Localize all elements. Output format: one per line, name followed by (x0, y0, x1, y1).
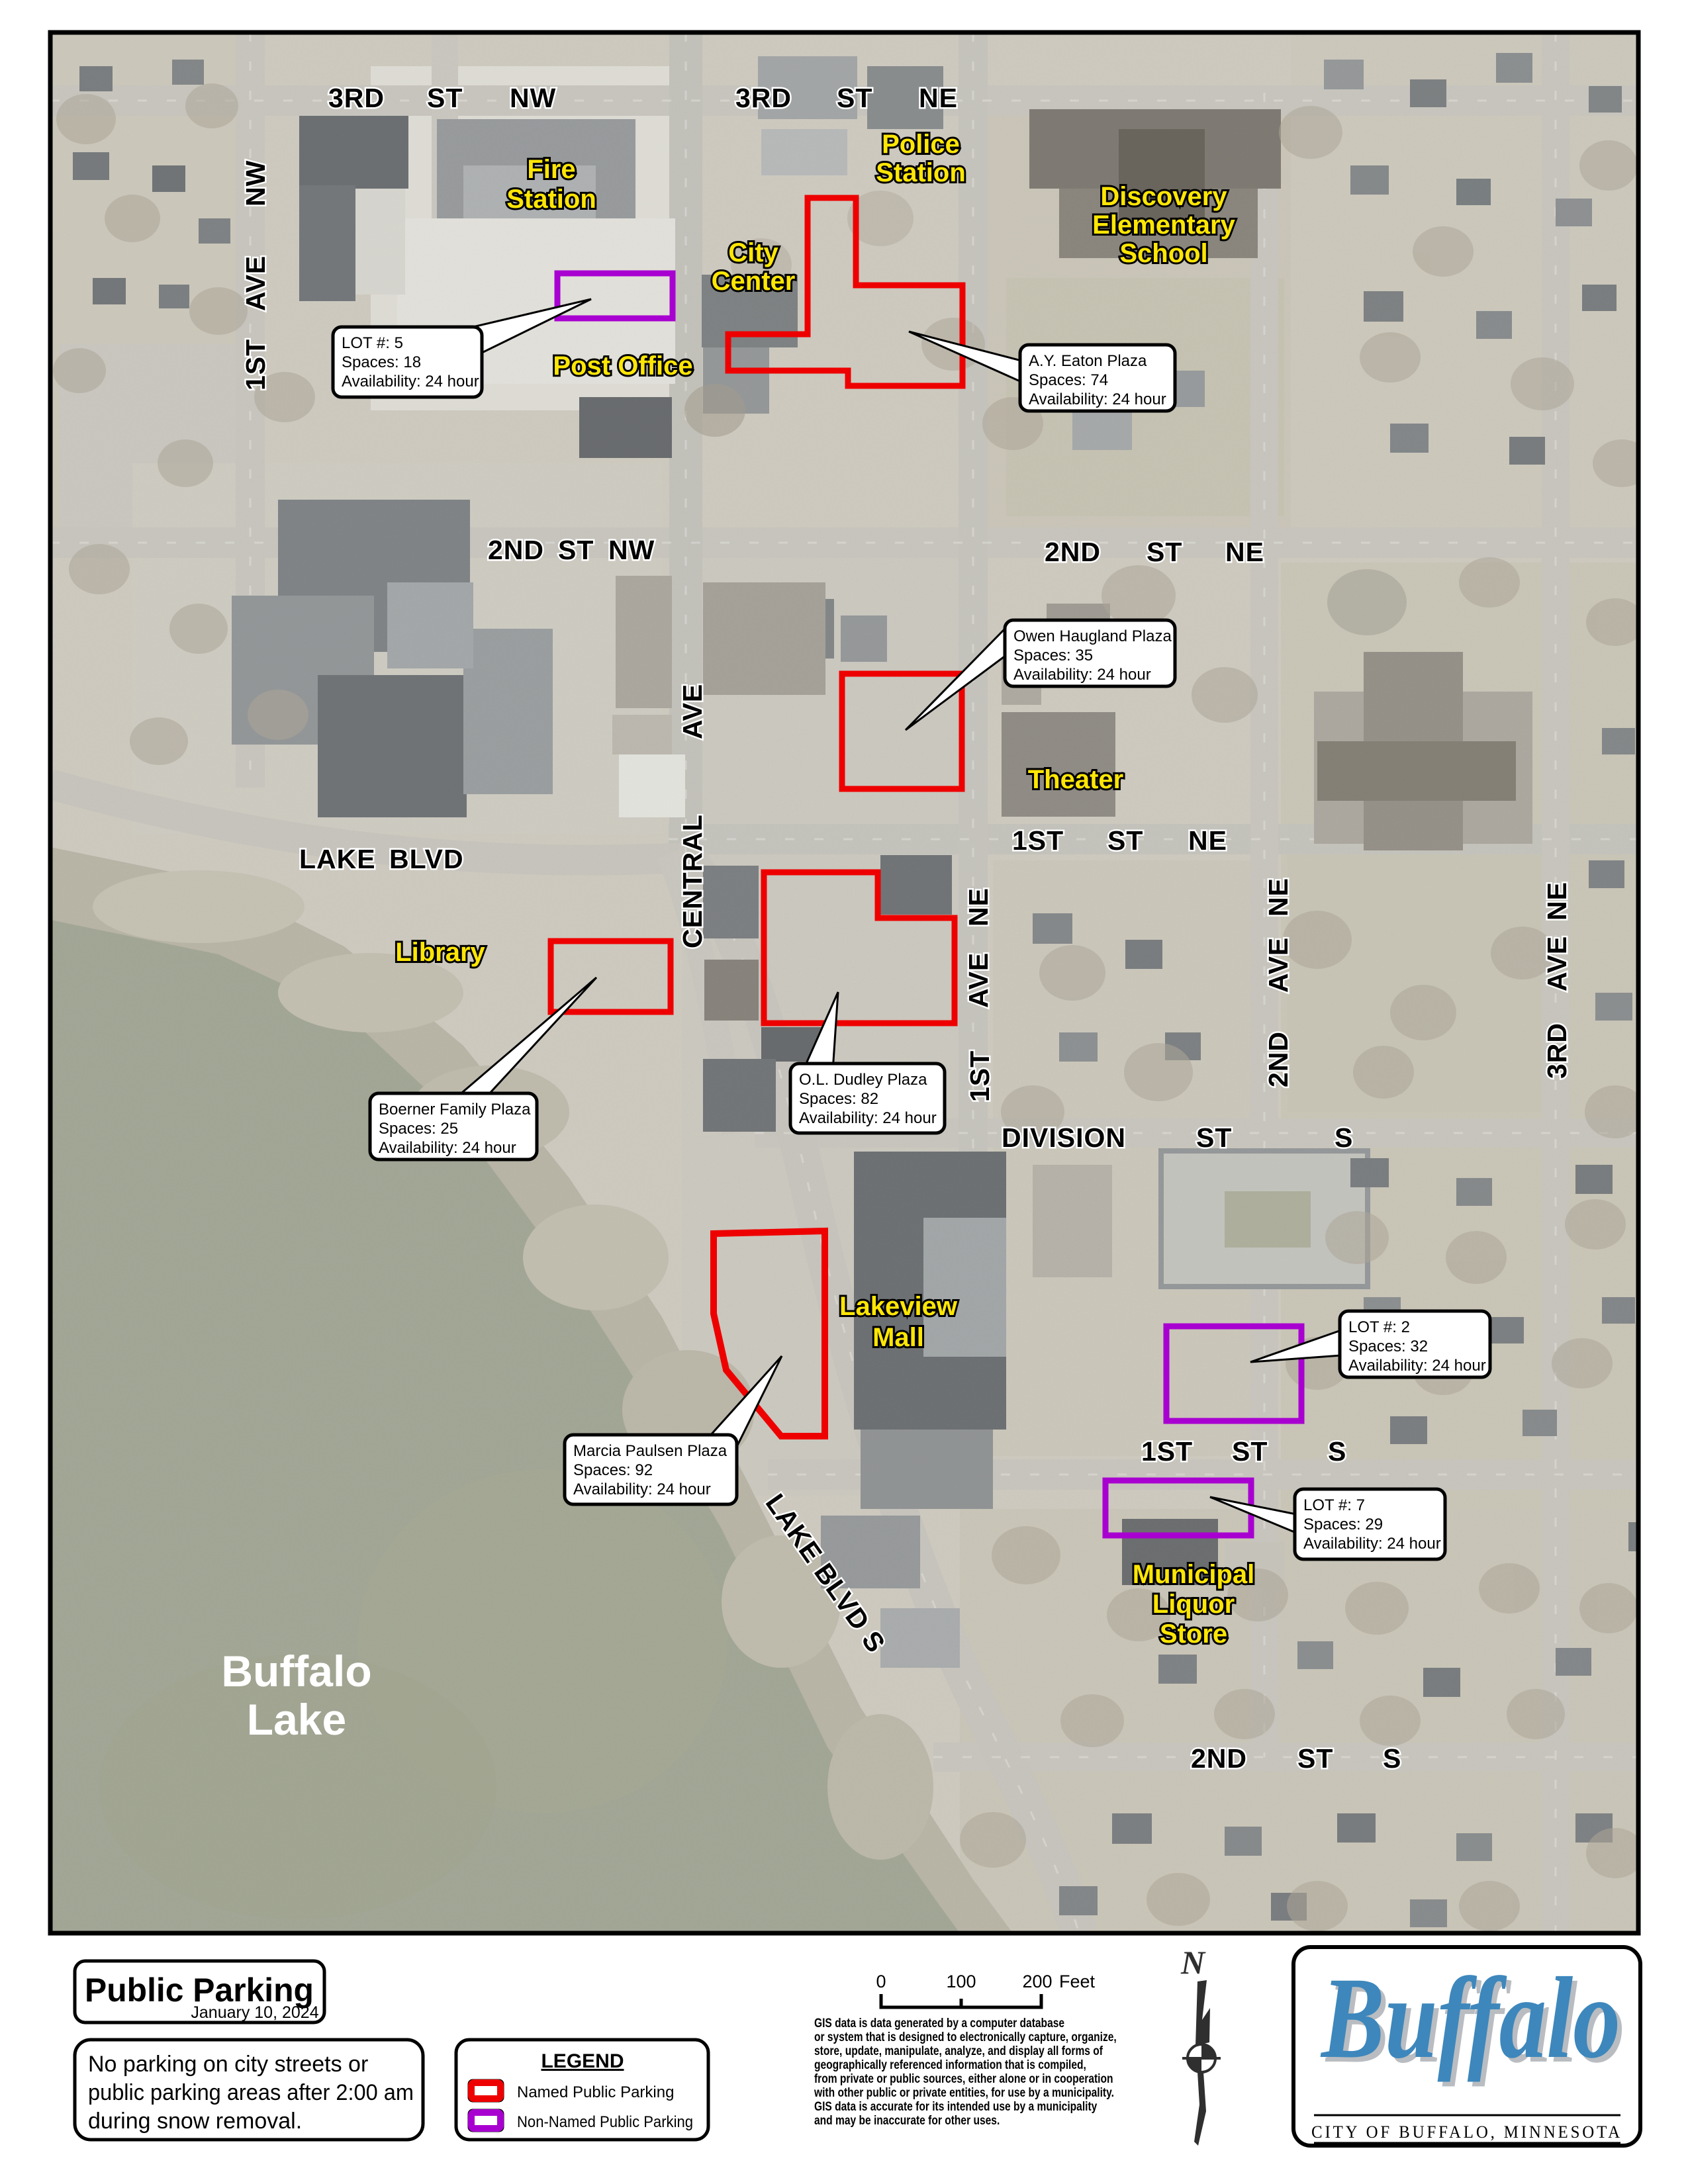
svg-text:LOT #: 5: LOT #: 5 (342, 334, 403, 352)
svg-text:1ST: 1ST (240, 339, 271, 390)
svg-text:from private or public sources: from private or public sources, either a… (814, 2071, 1113, 2086)
svg-text:CENTRAL: CENTRAL (677, 814, 708, 948)
svg-text:S: S (1328, 1436, 1346, 1467)
svg-text:2ND: 2ND (1045, 537, 1101, 567)
svg-text:100: 100 (946, 1972, 976, 1991)
svg-text:3RD: 3RD (735, 83, 792, 113)
svg-text:ST: ST (1196, 1122, 1232, 1153)
svg-text:Theater: Theater (1028, 765, 1124, 794)
svg-text:Marcia Paulsen Plaza: Marcia Paulsen Plaza (573, 1442, 727, 1460)
svg-text:ST: ST (1107, 825, 1143, 856)
svg-text:ST: ST (837, 83, 872, 113)
svg-text:City: City (728, 238, 778, 267)
svg-text:200: 200 (1022, 1972, 1052, 1991)
svg-text:Owen Haugland Plaza: Owen Haugland Plaza (1013, 627, 1172, 645)
svg-text:GIS data is data generated by: GIS data is data generated by a computer… (814, 2016, 1064, 2030)
svg-text:ST: ST (1232, 1436, 1268, 1467)
svg-text:CITY OF BUFFALO, MINNESOTA: CITY OF BUFFALO, MINNESOTA (1311, 2122, 1622, 2142)
svg-text:Center: Center (712, 267, 796, 296)
svg-text:geographically referenced info: geographically referenced information th… (814, 2058, 1086, 2072)
svg-text:Discovery: Discovery (1100, 182, 1227, 211)
svg-text:3RD: 3RD (1542, 1023, 1572, 1079)
svg-text:LAKE: LAKE (299, 844, 376, 874)
svg-text:Feet: Feet (1059, 1972, 1096, 1991)
svg-text:LOT #: 7: LOT #: 7 (1303, 1496, 1365, 1514)
svg-text:Availability: 24 hour: Availability: 24 hour (1029, 390, 1166, 408)
svg-text:BLVD: BLVD (389, 844, 464, 874)
svg-text:Availability: 24 hour: Availability: 24 hour (379, 1139, 516, 1157)
svg-text:S: S (1335, 1122, 1353, 1153)
svg-text:Station: Station (876, 158, 966, 187)
svg-text:ST: ST (1147, 537, 1182, 567)
svg-text:or system that is designed to: or system that is designed to electronic… (814, 2030, 1117, 2044)
svg-text:store, update, manipulate, ana: store, update, manipulate, analyze, and … (814, 2044, 1103, 2058)
svg-text:during snow removal.: during snow removal. (88, 2109, 302, 2134)
svg-text:with other public or private e: with other public or private entities, f… (814, 2085, 1114, 2100)
svg-text:O.L. Dudley Plaza: O.L. Dudley Plaza (799, 1071, 927, 1089)
svg-text:1ST: 1ST (964, 1050, 995, 1102)
svg-text:AVE: AVE (1263, 937, 1293, 993)
svg-text:0: 0 (876, 1972, 886, 1991)
svg-text:NE: NE (963, 887, 994, 927)
svg-text:public parking areas after 2:0: public parking areas after 2:00 am (88, 2080, 414, 2105)
svg-text:No parking on city streets or: No parking on city streets or (88, 2052, 368, 2077)
svg-text:January 10, 2024: January 10, 2024 (191, 2003, 318, 2022)
svg-text:2ND: 2ND (1191, 1743, 1247, 1774)
svg-text:Spaces: 25: Spaces: 25 (379, 1120, 458, 1138)
svg-text:Availability: 24 hour: Availability: 24 hour (1303, 1535, 1441, 1553)
svg-text:1ST: 1ST (1141, 1436, 1193, 1467)
svg-text:Police: Police (882, 130, 960, 159)
svg-text:S: S (1383, 1743, 1401, 1774)
svg-text:Buffalo: Buffalo (1320, 1954, 1620, 2083)
svg-text:and may be inaccurate for othe: and may be inaccurate for other uses. (814, 2113, 1000, 2128)
svg-text:ST: ST (427, 83, 463, 113)
svg-text:NE: NE (1225, 537, 1264, 567)
svg-text:N: N (1180, 1944, 1206, 1981)
svg-text:2ND: 2ND (488, 535, 544, 565)
svg-text:Municipal: Municipal (1133, 1560, 1254, 1589)
svg-text:Library: Library (395, 938, 485, 967)
svg-text:NW: NW (240, 160, 271, 206)
svg-text:School: School (1119, 239, 1207, 268)
svg-text:NW: NW (608, 535, 655, 565)
svg-text:Availability: 24 hour: Availability: 24 hour (342, 373, 479, 390)
svg-text:GIS data is accurate for its i: GIS data is accurate for its intended us… (814, 2099, 1098, 2114)
svg-text:A.Y. Eaton Plaza: A.Y. Eaton Plaza (1029, 352, 1147, 370)
svg-text:Spaces: 82: Spaces: 82 (799, 1090, 878, 1108)
svg-text:Spaces: 29: Spaces: 29 (1303, 1516, 1383, 1533)
svg-text:3RD: 3RD (328, 83, 385, 113)
svg-text:LEGEND: LEGEND (541, 2050, 624, 2072)
svg-text:Non-Named Public Parking: Non-Named Public Parking (517, 2113, 693, 2131)
svg-text:NE: NE (919, 83, 958, 113)
svg-text:2ND: 2ND (1263, 1031, 1293, 1087)
svg-text:Lakeview: Lakeview (839, 1292, 958, 1321)
svg-text:Mall: Mall (872, 1323, 924, 1352)
svg-text:Availability: 24 hour: Availability: 24 hour (573, 1480, 711, 1498)
svg-text:Post Office: Post Office (553, 351, 692, 381)
svg-text:AVE: AVE (240, 255, 271, 311)
svg-text:Spaces: 32: Spaces: 32 (1348, 1338, 1428, 1355)
svg-text:NW: NW (510, 83, 556, 113)
svg-text:1ST: 1ST (1012, 825, 1064, 856)
svg-text:AVE: AVE (677, 684, 708, 739)
svg-text:Boerner Family Plaza: Boerner Family Plaza (379, 1101, 531, 1118)
svg-text:Store: Store (1160, 1619, 1227, 1649)
svg-text:Elementary: Elementary (1092, 210, 1235, 240)
svg-text:Fire: Fire (527, 155, 575, 184)
svg-text:Availability: 24 hour: Availability: 24 hour (1348, 1357, 1486, 1375)
svg-text:Availability: 24 hour: Availability: 24 hour (799, 1109, 937, 1127)
svg-text:Station: Station (506, 185, 596, 214)
svg-text:Buffalo: Buffalo (221, 1647, 371, 1696)
svg-text:NE: NE (1542, 882, 1572, 921)
svg-text:Lake: Lake (247, 1695, 346, 1744)
svg-text:DIVISION: DIVISION (1002, 1122, 1126, 1153)
svg-text:NE: NE (1188, 825, 1227, 856)
svg-text:Spaces: 92: Spaces: 92 (573, 1461, 653, 1479)
svg-text:LOT #: 2: LOT #: 2 (1348, 1318, 1410, 1336)
svg-text:Availability: 24 hour: Availability: 24 hour (1013, 666, 1151, 684)
svg-text:Named Public Parking: Named Public Parking (517, 2083, 674, 2101)
svg-text:ST: ST (1297, 1743, 1333, 1774)
svg-text:Spaces: 18: Spaces: 18 (342, 353, 421, 371)
svg-text:AVE: AVE (1542, 936, 1572, 991)
svg-text:Spaces: 35: Spaces: 35 (1013, 647, 1093, 664)
svg-text:NE: NE (1263, 878, 1293, 917)
svg-text:Spaces: 74: Spaces: 74 (1029, 371, 1108, 389)
svg-text:AVE: AVE (963, 952, 994, 1008)
svg-text:ST: ST (558, 535, 594, 565)
svg-text:Liquor: Liquor (1152, 1590, 1235, 1619)
